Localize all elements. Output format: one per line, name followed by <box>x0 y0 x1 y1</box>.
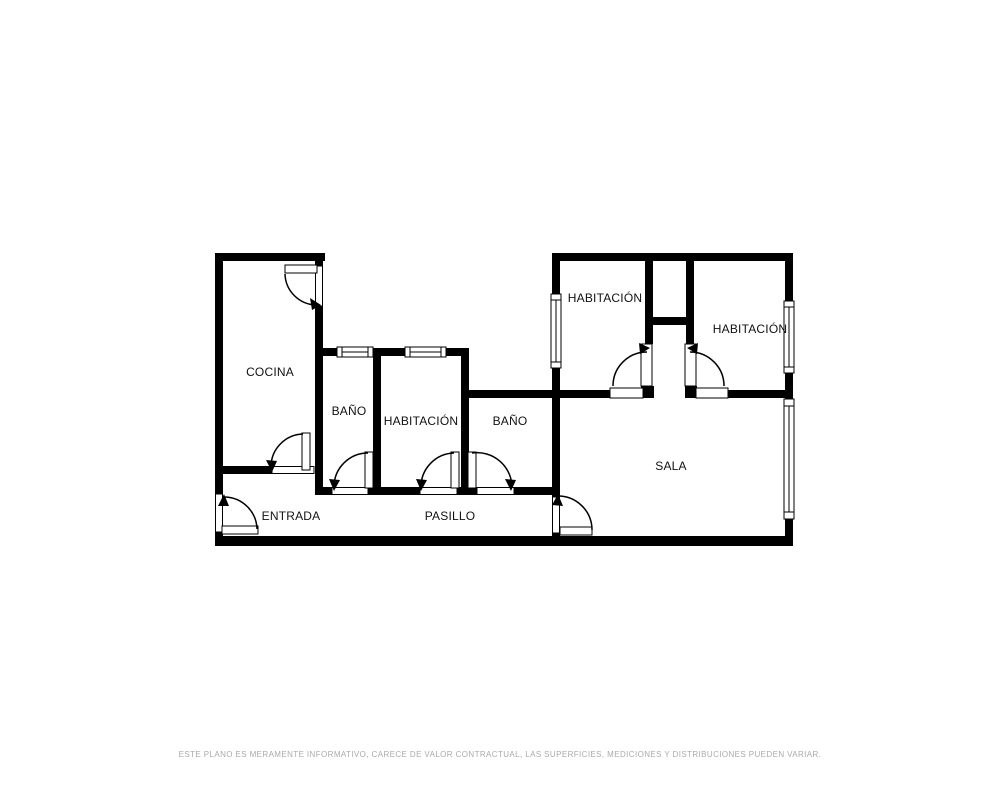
floorplan: COCINA BAÑO HABITACIÓN BAÑO HABITACIÓN H… <box>0 0 1000 800</box>
door-swing-icon-sala <box>552 494 592 535</box>
wall-right-exterior-1 <box>785 261 793 302</box>
room-label-bano1: BAÑO <box>332 404 367 418</box>
door-swing-icon-cocina-top <box>285 265 323 310</box>
disclaimer-text: ESTE PLANO ES MERAMENTE INFORMATIVO, CAR… <box>0 750 1000 759</box>
room-label-sala: SALA <box>655 459 687 473</box>
wall-shaft-right <box>686 261 694 325</box>
wall-sala-north-d <box>727 390 790 398</box>
room-label-entrada: ENTRADA <box>262 509 321 523</box>
walls-layer <box>215 253 793 546</box>
wall-sala-north-a <box>556 390 612 398</box>
floorplan-drawing <box>0 0 1000 800</box>
wall-sala-west-2 <box>552 368 560 497</box>
wall-sala-west-3 <box>552 533 560 538</box>
window-icon-habitacion-der <box>784 301 794 373</box>
door-swing-icon-bano2 <box>468 452 516 495</box>
wall-shaft-left-stub <box>645 325 653 344</box>
wall-bano1-right <box>373 348 381 495</box>
door-swing-icon-entrada <box>216 494 259 534</box>
window-icon-habitacion-media <box>405 347 446 357</box>
room-label-habitacion-der: HABITACIÓN <box>713 322 787 336</box>
room-label-pasillo: PASILLO <box>425 509 476 523</box>
window-icon-habitacion-izq <box>551 294 561 368</box>
door-swing-icon-cocina-bottom <box>266 433 314 474</box>
wall-bottom-exterior <box>215 536 793 546</box>
wall-right-exterior-3 <box>785 518 793 538</box>
room-label-habitacion-izq: HABITACIÓN <box>568 291 642 305</box>
door-swing-icon-bano1 <box>329 452 373 495</box>
room-label-habitacion-media: HABITACIÓN <box>384 414 458 428</box>
window-icon-bano1 <box>337 347 373 357</box>
wall-sala-west-1 <box>552 261 560 295</box>
wall-pasillo-b <box>368 487 420 495</box>
wall-cocina-right <box>315 306 323 495</box>
wall-midblock-top-a <box>315 348 338 356</box>
wall-left-exterior <box>215 261 223 494</box>
wall-cocina-right-stub <box>315 253 323 266</box>
wall-sala-north-c <box>685 386 697 398</box>
wall-cocina-bottom <box>215 466 272 474</box>
room-label-cocina: COCINA <box>246 365 294 379</box>
wall-pasillo-a <box>315 487 332 495</box>
window-icon-sala <box>784 399 794 519</box>
wall-top-right-block <box>552 253 793 261</box>
wall-top-left-block <box>215 253 325 261</box>
door-swing-icon-habitacion-media <box>416 452 459 495</box>
room-label-bano2: BAÑO <box>493 414 528 428</box>
wall-shaft-right-stub <box>686 325 694 344</box>
wall-shaft-left <box>645 261 653 325</box>
wall-bano2-top <box>461 390 556 398</box>
